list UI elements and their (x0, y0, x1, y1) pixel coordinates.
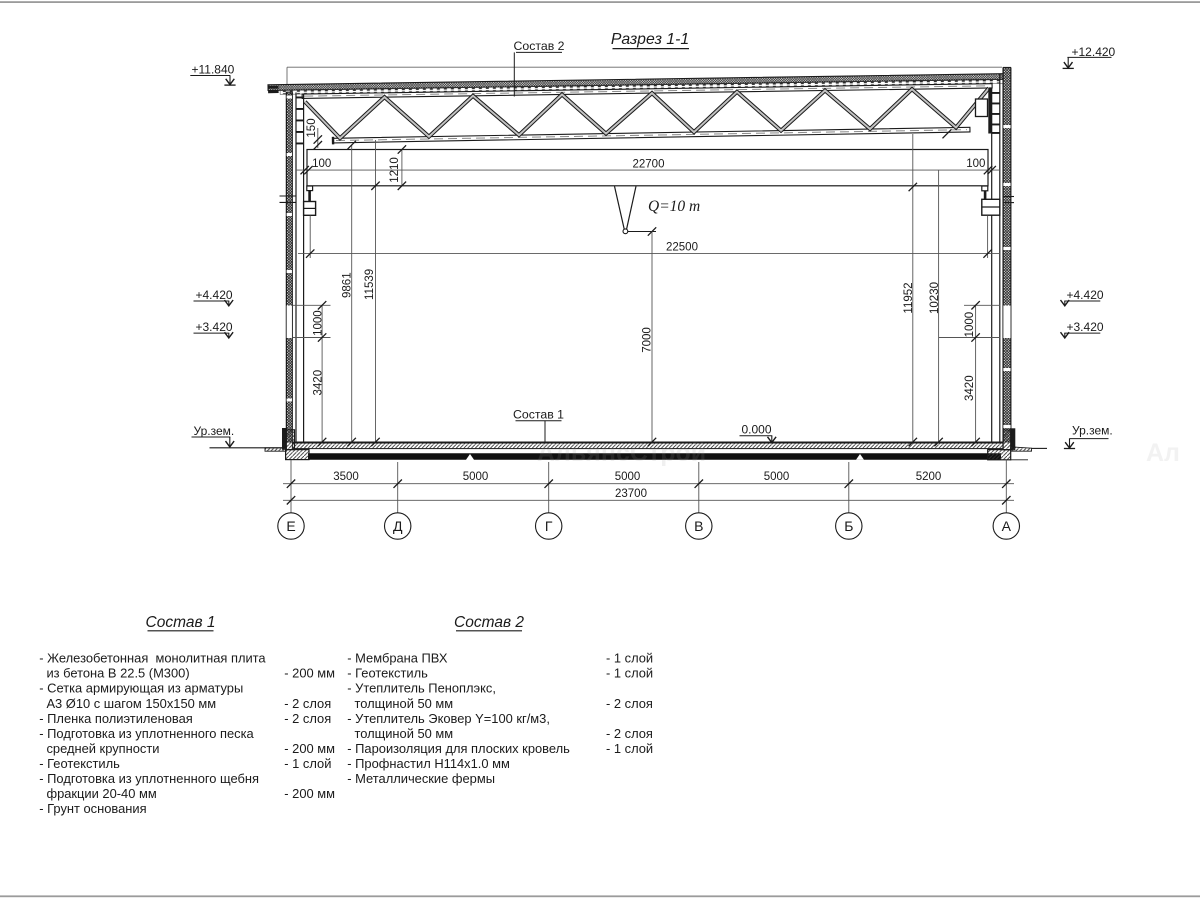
svg-text:1000: 1000 (312, 310, 324, 336)
svg-text:+11.840: +11.840 (192, 62, 235, 76)
svg-text:средней крупности: средней крупности (39, 741, 159, 756)
svg-text:толщиной 50 мм: толщиной 50 мм (347, 726, 453, 741)
svg-text:22500: 22500 (666, 241, 698, 253)
svg-text:5000: 5000 (615, 471, 641, 483)
svg-text:- 2 слоя: - 2 слоя (284, 696, 331, 711)
svg-text:- 2 слоя: - 2 слоя (284, 711, 331, 726)
svg-text:А3 Ø10 с шагом 150х150 мм: А3 Ø10 с шагом 150х150 мм (39, 696, 216, 711)
svg-text:100: 100 (312, 158, 331, 170)
svg-text:- 1 слой: - 1 слой (606, 666, 653, 681)
svg-text:- Грунт основания: - Грунт основания (39, 801, 146, 816)
svg-text:Состав 2: Состав 2 (514, 39, 565, 53)
svg-text:- Подготовка из уплотненного щ: - Подготовка из уплотненного щебня (39, 771, 259, 786)
svg-text:из бетона В 22.5 (М300): из бетона В 22.5 (М300) (39, 666, 189, 681)
svg-text:- Геотекстиль: - Геотекстиль (39, 756, 120, 771)
svg-text:- Утеплитель Эковер Y=100 кг/м: - Утеплитель Эковер Y=100 кг/м3, (347, 711, 550, 726)
svg-text:3420: 3420 (312, 370, 324, 396)
svg-text:толщиной 50 мм: толщиной 50 мм (347, 696, 453, 711)
svg-text:100: 100 (966, 158, 985, 170)
svg-text:- Геотекстиль: - Геотекстиль (347, 666, 428, 681)
svg-text:3420: 3420 (964, 375, 976, 401)
svg-text:- Железобетонная монолитная п: - Железобетонная монолитная плита (39, 651, 266, 666)
svg-text:9861: 9861 (341, 272, 353, 298)
svg-text:0.000: 0.000 (742, 422, 772, 436)
svg-text:- Профнастил Н114х1.0 мм: - Профнастил Н114х1.0 мм (347, 756, 510, 771)
svg-text:Состав 1: Состав 1 (513, 407, 564, 421)
svg-text:Ур.зем.: Ур.зем. (1072, 423, 1113, 437)
svg-text:- 1 слой: - 1 слой (606, 651, 653, 666)
svg-text:Е: Е (286, 518, 295, 534)
svg-text:- 200 мм: - 200 мм (284, 666, 335, 681)
svg-text:5000: 5000 (764, 471, 790, 483)
svg-text:+4.420: +4.420 (1067, 288, 1104, 302)
svg-text:Состав 1: Состав 1 (146, 614, 216, 631)
svg-text:- 1 слой: - 1 слой (284, 756, 331, 771)
svg-text:22700: 22700 (633, 158, 665, 170)
svg-text:- Пароизоляция для плоских кро: - Пароизоляция для плоских кровель (347, 741, 570, 756)
svg-text:Д: Д (393, 518, 403, 534)
svg-text:- 2 слоя: - 2 слоя (606, 726, 653, 741)
svg-text:23700: 23700 (615, 488, 647, 500)
svg-text:+12.420: +12.420 (1072, 45, 1116, 59)
svg-text:1000: 1000 (964, 312, 976, 338)
svg-text:Ал: Ал (1146, 439, 1180, 467)
svg-text:5000: 5000 (463, 471, 489, 483)
svg-text:10230: 10230 (929, 282, 941, 314)
svg-text:- Утеплитель Пеноплэкс,: - Утеплитель Пеноплэкс, (347, 681, 496, 696)
svg-text:150: 150 (306, 118, 318, 137)
svg-text:Разрез 1-1: Разрез 1-1 (611, 31, 689, 48)
svg-text:АльянсСтрой: АльянсСтрой (537, 439, 706, 467)
svg-text:Г: Г (545, 518, 553, 534)
svg-text:+4.420: +4.420 (196, 288, 233, 302)
svg-text:фракции 20-40 мм: фракции 20-40 мм (39, 786, 156, 801)
svg-text:- Металлические фермы: - Металлические фермы (347, 771, 495, 786)
svg-text:- 200 мм: - 200 мм (284, 741, 335, 756)
svg-text:5200: 5200 (916, 471, 942, 483)
svg-text:Б: Б (844, 518, 853, 534)
svg-text:11952: 11952 (903, 282, 915, 313)
svg-text:11539: 11539 (364, 269, 376, 300)
svg-text:А: А (1002, 518, 1012, 534)
svg-text:- 200 мм: - 200 мм (284, 786, 335, 801)
svg-text:- Подготовка из уплотненного п: - Подготовка из уплотненного песка (39, 726, 254, 741)
svg-text:- Сетка армирующая из арматуры: - Сетка армирующая из арматуры (39, 681, 243, 696)
svg-text:- Мембрана ПВХ: - Мембрана ПВХ (347, 651, 448, 666)
svg-text:+3.420: +3.420 (196, 320, 233, 334)
svg-text:7000: 7000 (642, 327, 654, 353)
svg-text:Ур.зем.: Ур.зем. (194, 424, 235, 438)
svg-text:- 1 слой: - 1 слой (606, 741, 653, 756)
svg-text:Состав 2: Состав 2 (454, 614, 524, 631)
svg-text:+3.420: +3.420 (1067, 320, 1104, 334)
svg-text:- 2 слоя: - 2 слоя (606, 696, 653, 711)
svg-text:В: В (694, 518, 703, 534)
svg-text:3500: 3500 (333, 471, 359, 483)
svg-text:- Пленка полиэтиленовая: - Пленка полиэтиленовая (39, 711, 192, 726)
svg-text:Q=10 т: Q=10 т (648, 198, 700, 215)
